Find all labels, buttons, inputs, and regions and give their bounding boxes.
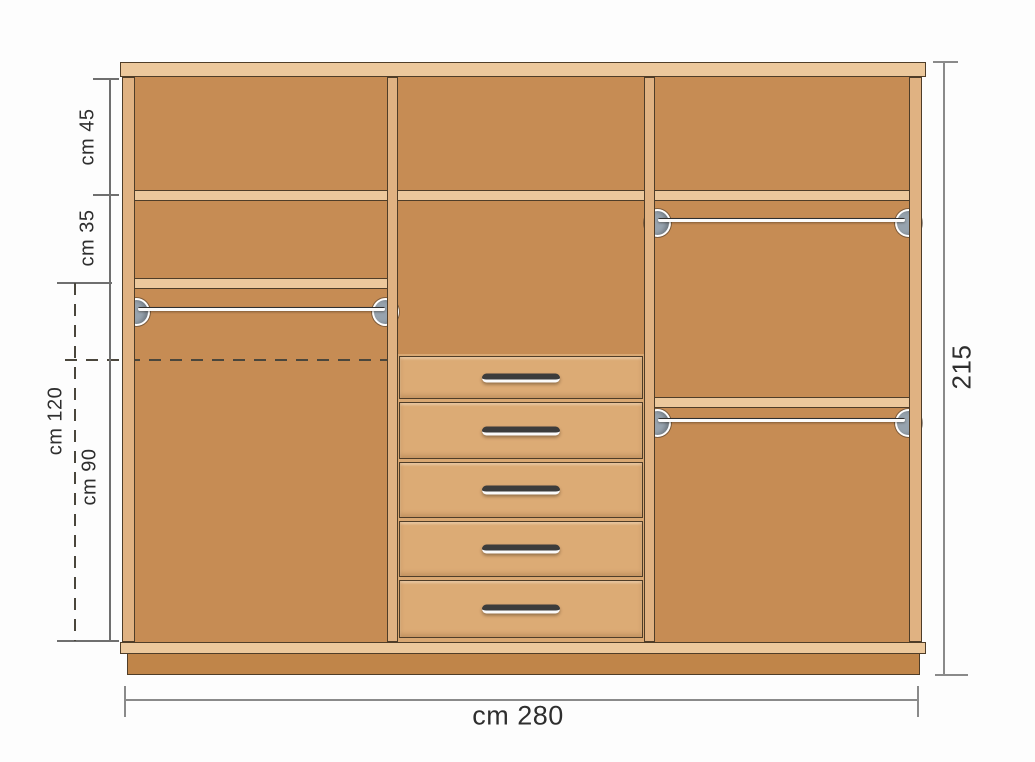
drawer-4: [399, 521, 643, 577]
dim-label-top-shelf: cm 45: [77, 109, 100, 166]
side-panel-right: [909, 77, 922, 642]
dim-tick: [935, 674, 968, 676]
drawer-handle-icon: [482, 426, 560, 435]
plinth-base: [127, 653, 920, 675]
drawer-2: [399, 402, 643, 459]
shelf-left-lower: [122, 278, 398, 289]
drawer-1: [399, 356, 643, 399]
dim-label-overall-width: cm 280: [472, 701, 564, 732]
hanging-rail-right-lower: [658, 418, 905, 422]
dim-label-lower-total: cm 120: [45, 387, 68, 456]
interior-right-section: [655, 77, 909, 642]
divider-left-middle: [387, 77, 398, 642]
drawer-handle-icon: [482, 486, 560, 495]
drawer-handle-icon: [482, 605, 560, 614]
drawer-3: [399, 462, 643, 518]
hanging-height-dashed-line: [65, 359, 387, 361]
dim-tick: [57, 640, 119, 642]
hanging-rail-left: [138, 307, 385, 311]
dim-label-second-shelf: cm 35: [77, 210, 100, 267]
dim-tick: [917, 686, 919, 717]
hanging-rail-right-upper: [658, 218, 905, 222]
shelf-middle-upper: [387, 190, 655, 201]
dim-line-left-vertical: [109, 79, 111, 641]
dim-tick: [93, 194, 119, 196]
dim-label-overall-height: 215: [947, 345, 978, 390]
side-panel-left: [122, 77, 135, 642]
dim-tick: [93, 78, 119, 80]
dim-label-hanging-space: cm 90: [79, 449, 102, 506]
drawer-handle-icon: [482, 373, 560, 382]
drawer-5: [399, 580, 643, 638]
divider-middle-right: [644, 77, 655, 642]
dim-tick: [124, 686, 126, 717]
dim-line-left-dashed-vertical: [74, 283, 76, 641]
shelf-right-upper: [644, 190, 922, 201]
dim-line-right-vertical: [943, 62, 945, 675]
shelf-left-upper: [122, 190, 398, 201]
dim-tick: [933, 61, 958, 63]
shelf-right-middle: [644, 397, 922, 408]
dim-tick: [57, 282, 112, 284]
drawer-handle-icon: [482, 545, 560, 554]
wardrobe-diagram: cm 45 cm 35 cm 120 cm 90 215 cm 280: [0, 0, 1035, 762]
top-board: [120, 62, 926, 77]
